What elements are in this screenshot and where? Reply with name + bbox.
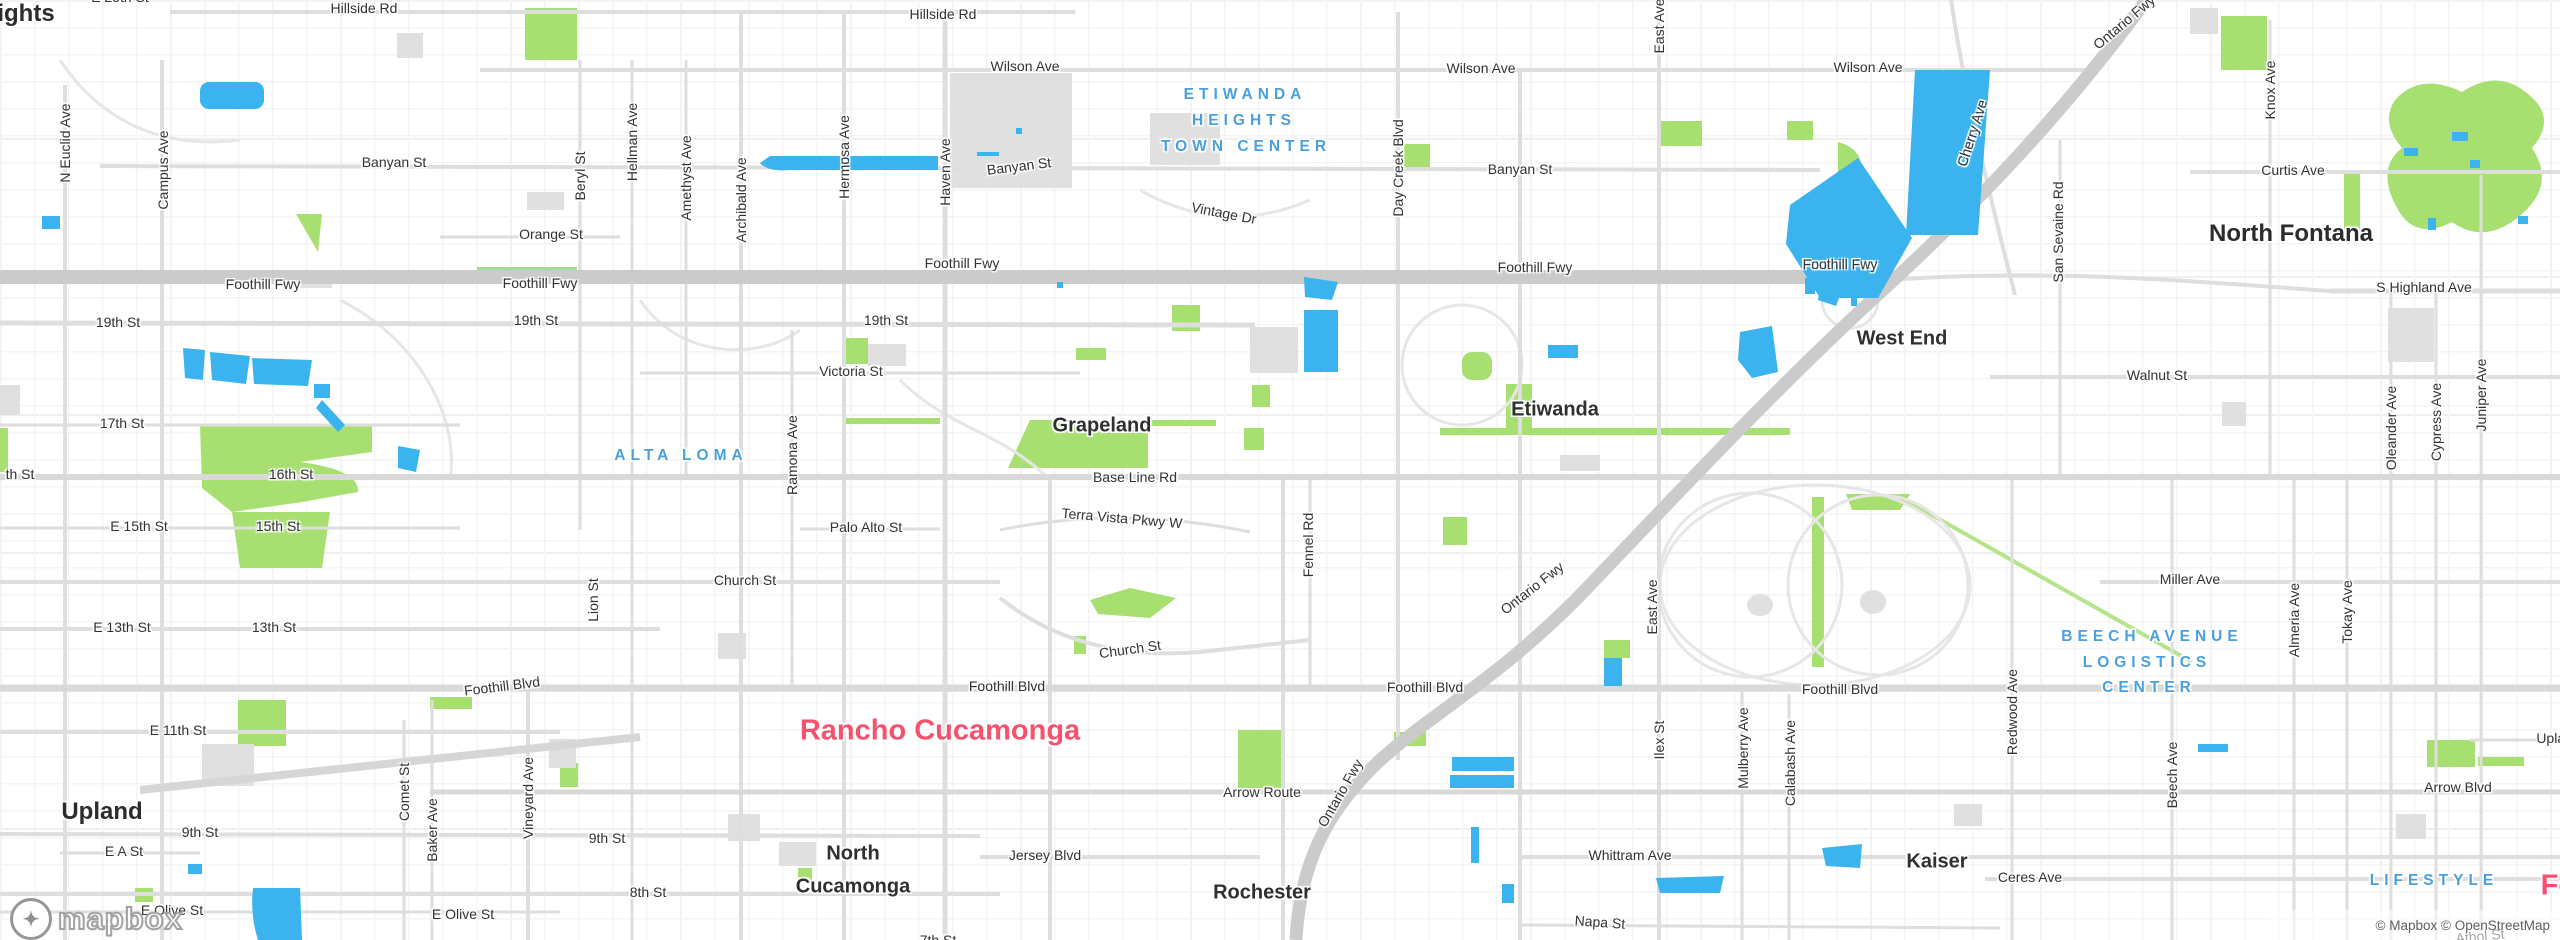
mapbox-logo-icon: ✦ [10,898,52,940]
mapbox-logo[interactable]: ✦ mapbox [10,898,183,940]
roads [0,0,2560,940]
map-canvas[interactable]: E 25th StightsHillside RdHillside RdWils… [0,0,2560,940]
mapbox-logo-word: mapbox [58,901,183,937]
map-attribution[interactable]: © Mapbox © OpenStreetMap [2266,910,2560,940]
map-features [0,0,2560,940]
